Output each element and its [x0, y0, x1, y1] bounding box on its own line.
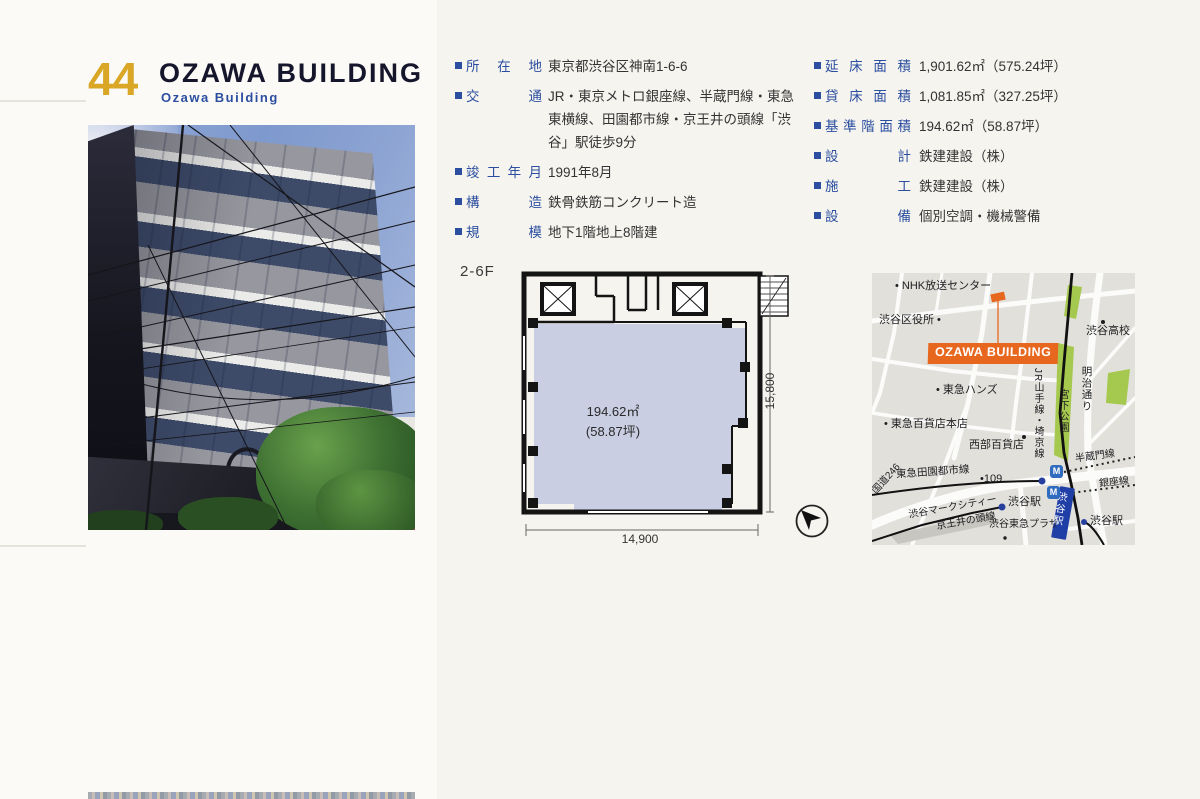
map-label-shibuya-highschool: 渋谷高校 [1086, 325, 1130, 337]
floor-plan: 194.62㎡ (58.87坪) 15,800 14,900 [518, 266, 813, 561]
bullet-icon [455, 92, 462, 99]
detail-row-total-area: 延床面積 1,901.62㎡（575.24坪） [814, 56, 1159, 79]
detail-row-rentable-area: 貸床面積 1,081.85㎡（327.25坪） [814, 86, 1159, 109]
access-map: • NHK放送センター 渋谷区役所 • 渋谷高校 OZAWA BUILDING … [872, 273, 1135, 545]
detail-value: 東京都渋谷区神南1-6-6 [548, 56, 804, 79]
detail-value: 1,081.85㎡（327.25坪） [919, 86, 1159, 109]
detail-row-completion: 竣工年月 1991年8月 [455, 162, 807, 185]
detail-value: 鉄建建設（株） [919, 146, 1159, 169]
bullet-icon [814, 122, 821, 129]
detail-row-structure: 構造 鉄骨鉄筋コンクリート造 [455, 192, 807, 215]
detail-value: 鉄建建設（株） [919, 176, 1159, 199]
map-label-tokyu-hands: • 東急ハンズ [936, 384, 998, 396]
detail-label: 延床面積 [825, 56, 911, 78]
bullet-icon [814, 212, 821, 219]
scan-artifact-line [0, 545, 86, 547]
building-number: 44 [88, 52, 137, 106]
detail-label: 基準階面積 [825, 116, 911, 138]
detail-label: 竣工年月 [466, 162, 542, 184]
tokyo-metro-icon: M [1050, 465, 1063, 478]
detail-label: 構造 [466, 192, 542, 214]
map-label-meiji-dori: 明治通り [1080, 366, 1092, 412]
detail-value: 地下1階地上8階建 [548, 222, 804, 245]
map-label-shibuya-station-keio: 渋谷駅 [1008, 496, 1041, 508]
north-arrow-icon [793, 502, 831, 540]
dimension-width: 14,900 [580, 532, 700, 546]
dimension-height: 15,800 [763, 361, 777, 421]
map-label-seibu-department: 西部百貨店 [969, 439, 1024, 451]
bullet-icon [455, 198, 462, 205]
map-label-ozawa-building: OZAWA BUILDING [928, 343, 1059, 364]
detail-row-equipment: 設備 個別空調・機械警備 [814, 206, 1159, 229]
detail-value: 個別空調・機械警備 [919, 206, 1159, 229]
detail-row-design: 設計 鉄建建設（株） [814, 146, 1159, 169]
detail-value: 1991年8月 [548, 162, 804, 185]
page-title: OZAWA BUILDING [159, 58, 423, 89]
page-subtitle: Ozawa Building [161, 90, 279, 105]
brochure-page: 44 OZAWA BUILDING Ozawa Building [0, 0, 1200, 799]
scan-edge-artifact [88, 792, 415, 799]
bullet-icon [814, 152, 821, 159]
property-details-left: 所在地 東京都渋谷区神南1-6-6 交通 JR・東京メトロ銀座線、半蔵門線・東急… [455, 56, 807, 252]
tokyo-metro-icon: M [1047, 486, 1060, 499]
map-label-jr-lines: JR山手線・埼京線 [1032, 368, 1043, 459]
map-label-nhk: • NHK放送センター [895, 280, 991, 292]
detail-value: 194.62㎡（58.87坪） [919, 116, 1159, 139]
bullet-icon [455, 62, 462, 69]
detail-row-location: 所在地 東京都渋谷区神南1-6-6 [455, 56, 807, 79]
detail-label: 所在地 [466, 56, 542, 78]
property-details-right: 延床面積 1,901.62㎡（575.24坪） 貸床面積 1,081.85㎡（3… [814, 56, 1159, 236]
detail-row-access: 交通 JR・東京メトロ銀座線、半蔵門線・東急東横線、田園都市線・京王井の頭線「渋… [455, 86, 807, 155]
photo-power-lines [88, 125, 415, 530]
floor-area-sqm: 194.62㎡ [558, 402, 668, 422]
detail-label: 設備 [825, 206, 911, 228]
detail-row-scale: 規模 地下1階地上8階建 [455, 222, 807, 245]
detail-value: 1,901.62㎡（575.24坪） [919, 56, 1159, 79]
detail-row-construction: 施工 鉄建建設（株） [814, 176, 1159, 199]
map-label-miyashita-park: 宮下公園 [1057, 389, 1068, 433]
detail-label: 貸床面積 [825, 86, 911, 108]
bullet-icon [814, 62, 821, 69]
detail-label: 規模 [466, 222, 542, 244]
map-label-tokyu-plaza: 渋谷東急プラザ [989, 519, 1059, 530]
detail-value: 鉄骨鉄筋コンクリート造 [548, 192, 804, 215]
map-label-tokyu-department: • 東急百貨店本店 [884, 418, 968, 430]
bullet-icon [455, 228, 462, 235]
floor-plan-area-text: 194.62㎡ (58.87坪) [558, 402, 668, 441]
floor-area-tsubo: (58.87坪) [558, 422, 668, 442]
floor-plan-floor-label: 2-6F [460, 263, 495, 280]
detail-value: JR・東京メトロ銀座線、半蔵門線・東急東横線、田園都市線・京王井の頭線「渋谷」駅… [548, 86, 804, 155]
building-photo [88, 125, 415, 530]
map-label-shibuya-station-east: 渋谷駅 [1090, 515, 1123, 527]
detail-row-standard-floor: 基準階面積 194.62㎡（58.87坪） [814, 116, 1159, 139]
detail-label: 交通 [466, 86, 542, 108]
detail-label: 施工 [825, 176, 911, 198]
bullet-icon [814, 92, 821, 99]
bullet-icon [455, 168, 462, 175]
map-label-ward-office: 渋谷区役所 • [879, 314, 941, 326]
detail-label: 設計 [825, 146, 911, 168]
map-label-109: •109 [980, 473, 1002, 485]
bullet-icon [814, 182, 821, 189]
scan-artifact-line [0, 100, 86, 102]
